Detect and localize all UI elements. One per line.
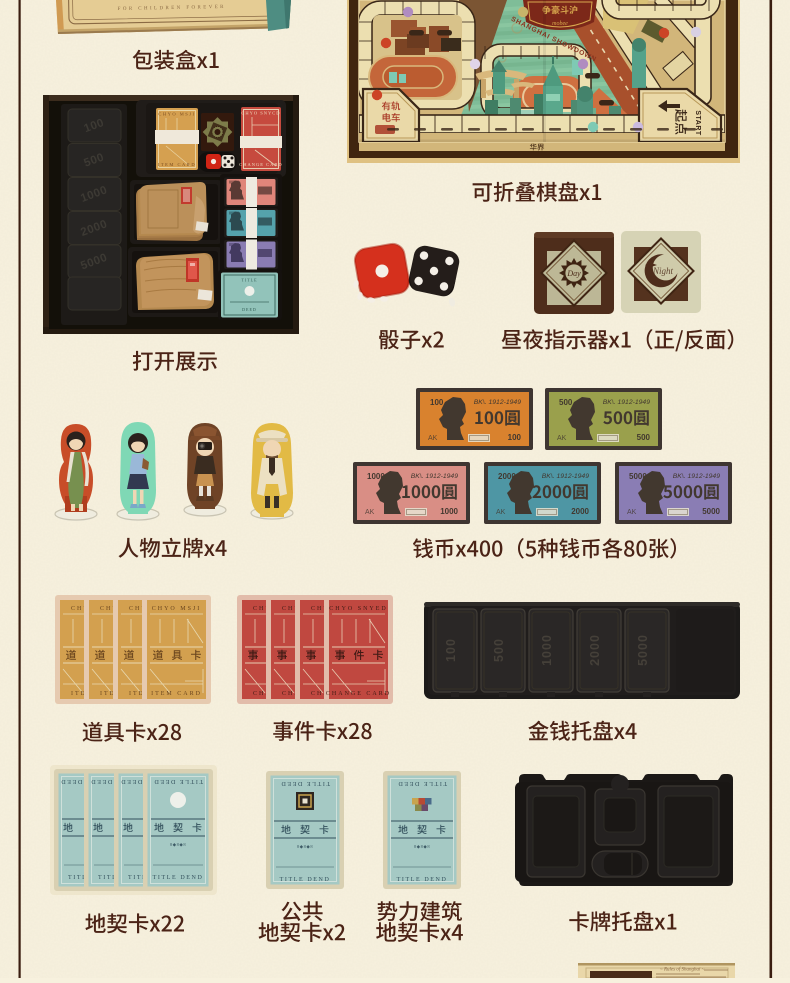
- svg-text:BK\. 1912-1949: BK\. 1912-1949: [411, 473, 458, 480]
- svg-text:CHANGE CARD: CHANGE CARD: [326, 691, 391, 697]
- svg-text:DEED: DEED: [242, 307, 257, 312]
- svg-text:1000: 1000: [540, 634, 554, 666]
- svg-text:TITLE DEND: TITLE DEND: [280, 877, 331, 883]
- svg-text:AK: AK: [428, 435, 438, 442]
- svg-text:AK: AK: [496, 509, 506, 516]
- svg-text:100: 100: [430, 398, 444, 407]
- svg-text:TITLE DEND: TITLE DEND: [397, 877, 448, 883]
- svg-text:TITLE DEED: TITLE DEED: [280, 780, 330, 786]
- svg-text:Day: Day: [566, 269, 581, 278]
- svg-text:AK: AK: [627, 509, 637, 516]
- svg-text:Night: Night: [652, 266, 674, 276]
- svg-text:500: 500: [492, 638, 506, 662]
- svg-text:~ Rules of Shanghai ~: ~ Rules of Shanghai ~: [660, 968, 705, 973]
- svg-text:BK\. 1912-1949: BK\. 1912-1949: [474, 399, 521, 406]
- svg-text:5000: 5000: [629, 472, 647, 481]
- svg-text:BK\. 1912-1949: BK\. 1912-1949: [542, 473, 589, 480]
- svg-text:BK\. 1912-1949: BK\. 1912-1949: [603, 399, 650, 406]
- svg-text:ITEM CARD: ITEM CARD: [158, 162, 196, 167]
- svg-text:5000: 5000: [702, 507, 720, 516]
- svg-text:AK: AK: [365, 509, 375, 516]
- svg-text:BK\. 1912-1949: BK\. 1912-1949: [673, 473, 720, 480]
- svg-text:TITLE: TITLE: [241, 278, 257, 283]
- svg-text:CHYO MSJI: CHYO MSJI: [158, 112, 195, 117]
- svg-text:CHYO SNYCD: CHYO SNYCD: [241, 111, 280, 116]
- svg-text:500: 500: [559, 398, 573, 407]
- svg-text:CHYO MSJI: CHYO MSJI: [152, 606, 202, 612]
- svg-text:START: START: [694, 110, 701, 136]
- svg-text:100: 100: [444, 638, 458, 662]
- svg-text:TITLE DEED: TITLE DEED: [153, 778, 203, 784]
- svg-text:500: 500: [637, 433, 651, 442]
- svg-text:TITLE DEND: TITLE DEND: [153, 875, 204, 881]
- svg-text:8◆8◆8: 8◆8◆8: [170, 842, 186, 847]
- svg-text:mobee: mobee: [552, 21, 568, 27]
- svg-text:2000: 2000: [588, 634, 602, 666]
- svg-text:ITEM CARD: ITEM CARD: [151, 691, 202, 697]
- svg-text:2000: 2000: [498, 472, 516, 481]
- svg-text:5000: 5000: [636, 634, 650, 666]
- svg-text:1000: 1000: [440, 507, 458, 516]
- svg-text:TITLE DEED: TITLE DEED: [397, 780, 447, 786]
- svg-text:CHANGE CARD: CHANGE CARD: [239, 162, 282, 167]
- svg-text:100: 100: [508, 433, 522, 442]
- svg-text:1000: 1000: [367, 472, 385, 481]
- svg-text:8◆8◆8: 8◆8◆8: [297, 844, 313, 849]
- svg-text:CHYO SNYED: CHYO SNYED: [329, 606, 388, 612]
- svg-text:AK: AK: [557, 435, 567, 442]
- svg-text:8◆8◆8: 8◆8◆8: [414, 844, 430, 849]
- svg-text:2000: 2000: [571, 507, 589, 516]
